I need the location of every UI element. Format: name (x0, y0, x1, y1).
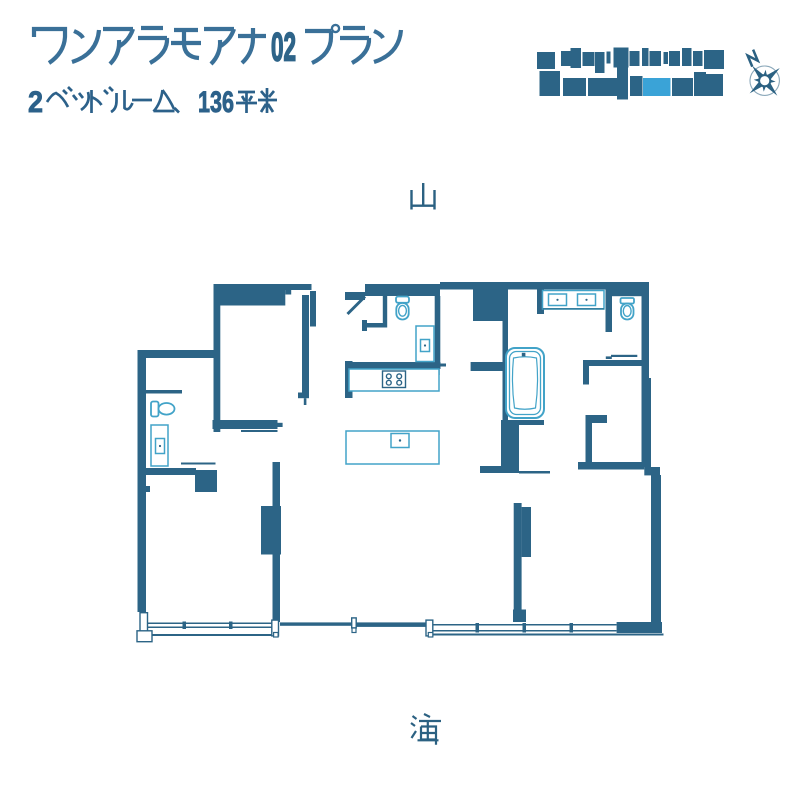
svg-text:136: 136 (198, 86, 234, 119)
svg-text:2: 2 (28, 86, 43, 119)
svg-text:02: 02 (271, 26, 296, 70)
